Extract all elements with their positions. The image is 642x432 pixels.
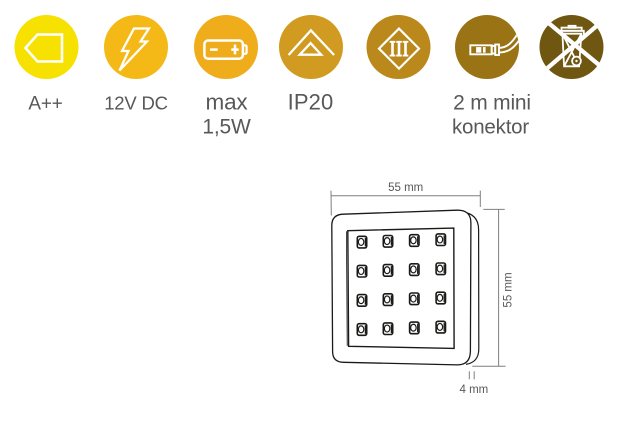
svg-text:max: max [206, 90, 249, 115]
svg-text:konektor: konektor [452, 116, 529, 139]
svg-text:4 mm: 4 mm [460, 384, 489, 396]
svg-text:12V DC: 12V DC [104, 93, 168, 114]
svg-text:55 mm: 55 mm [388, 182, 423, 194]
svg-text:55 mm: 55 mm [503, 272, 515, 307]
svg-text:1,5W: 1,5W [202, 116, 251, 139]
svg-text:IP20: IP20 [288, 90, 334, 115]
svg-text:A++: A++ [28, 94, 62, 115]
svg-text:2 m mini: 2 m mini [453, 92, 531, 115]
